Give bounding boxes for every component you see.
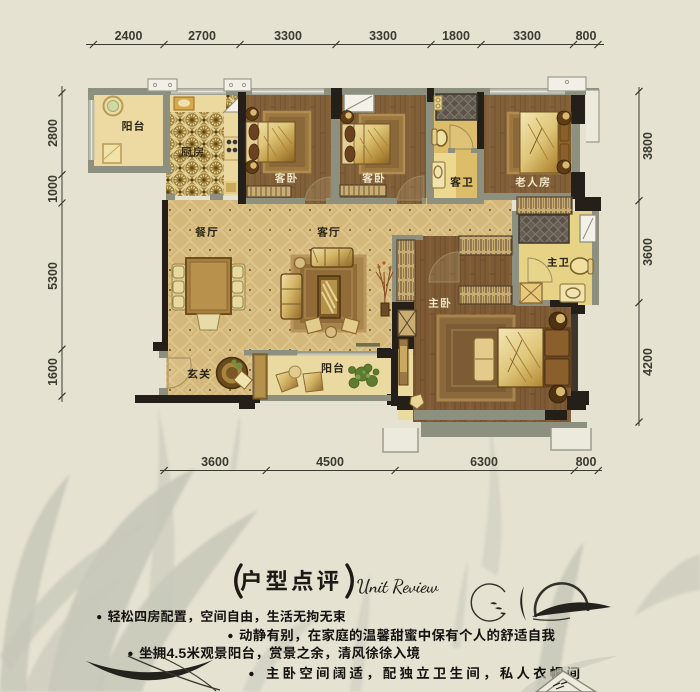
svg-text:1600: 1600 — [46, 358, 60, 386]
svg-text:2700: 2700 — [188, 29, 216, 43]
svg-text:4200: 4200 — [641, 348, 655, 376]
svg-text:2400: 2400 — [115, 29, 143, 43]
svg-text:3600: 3600 — [201, 455, 229, 469]
svg-text:3800: 3800 — [641, 132, 655, 160]
svg-text:1000: 1000 — [46, 175, 60, 203]
svg-text:4500: 4500 — [316, 455, 344, 469]
svg-text:3600: 3600 — [641, 238, 655, 266]
svg-text:3300: 3300 — [274, 29, 302, 43]
svg-text:800: 800 — [576, 29, 597, 43]
svg-text:800: 800 — [576, 455, 597, 469]
svg-text:1800: 1800 — [442, 29, 470, 43]
svg-text:5300: 5300 — [46, 262, 60, 290]
svg-text:4.5: 4.5 — [167, 646, 187, 662]
svg-text:6300: 6300 — [470, 455, 498, 469]
svg-text:3300: 3300 — [513, 29, 541, 43]
svg-text:3300: 3300 — [369, 29, 397, 43]
svg-text:2800: 2800 — [46, 119, 60, 147]
